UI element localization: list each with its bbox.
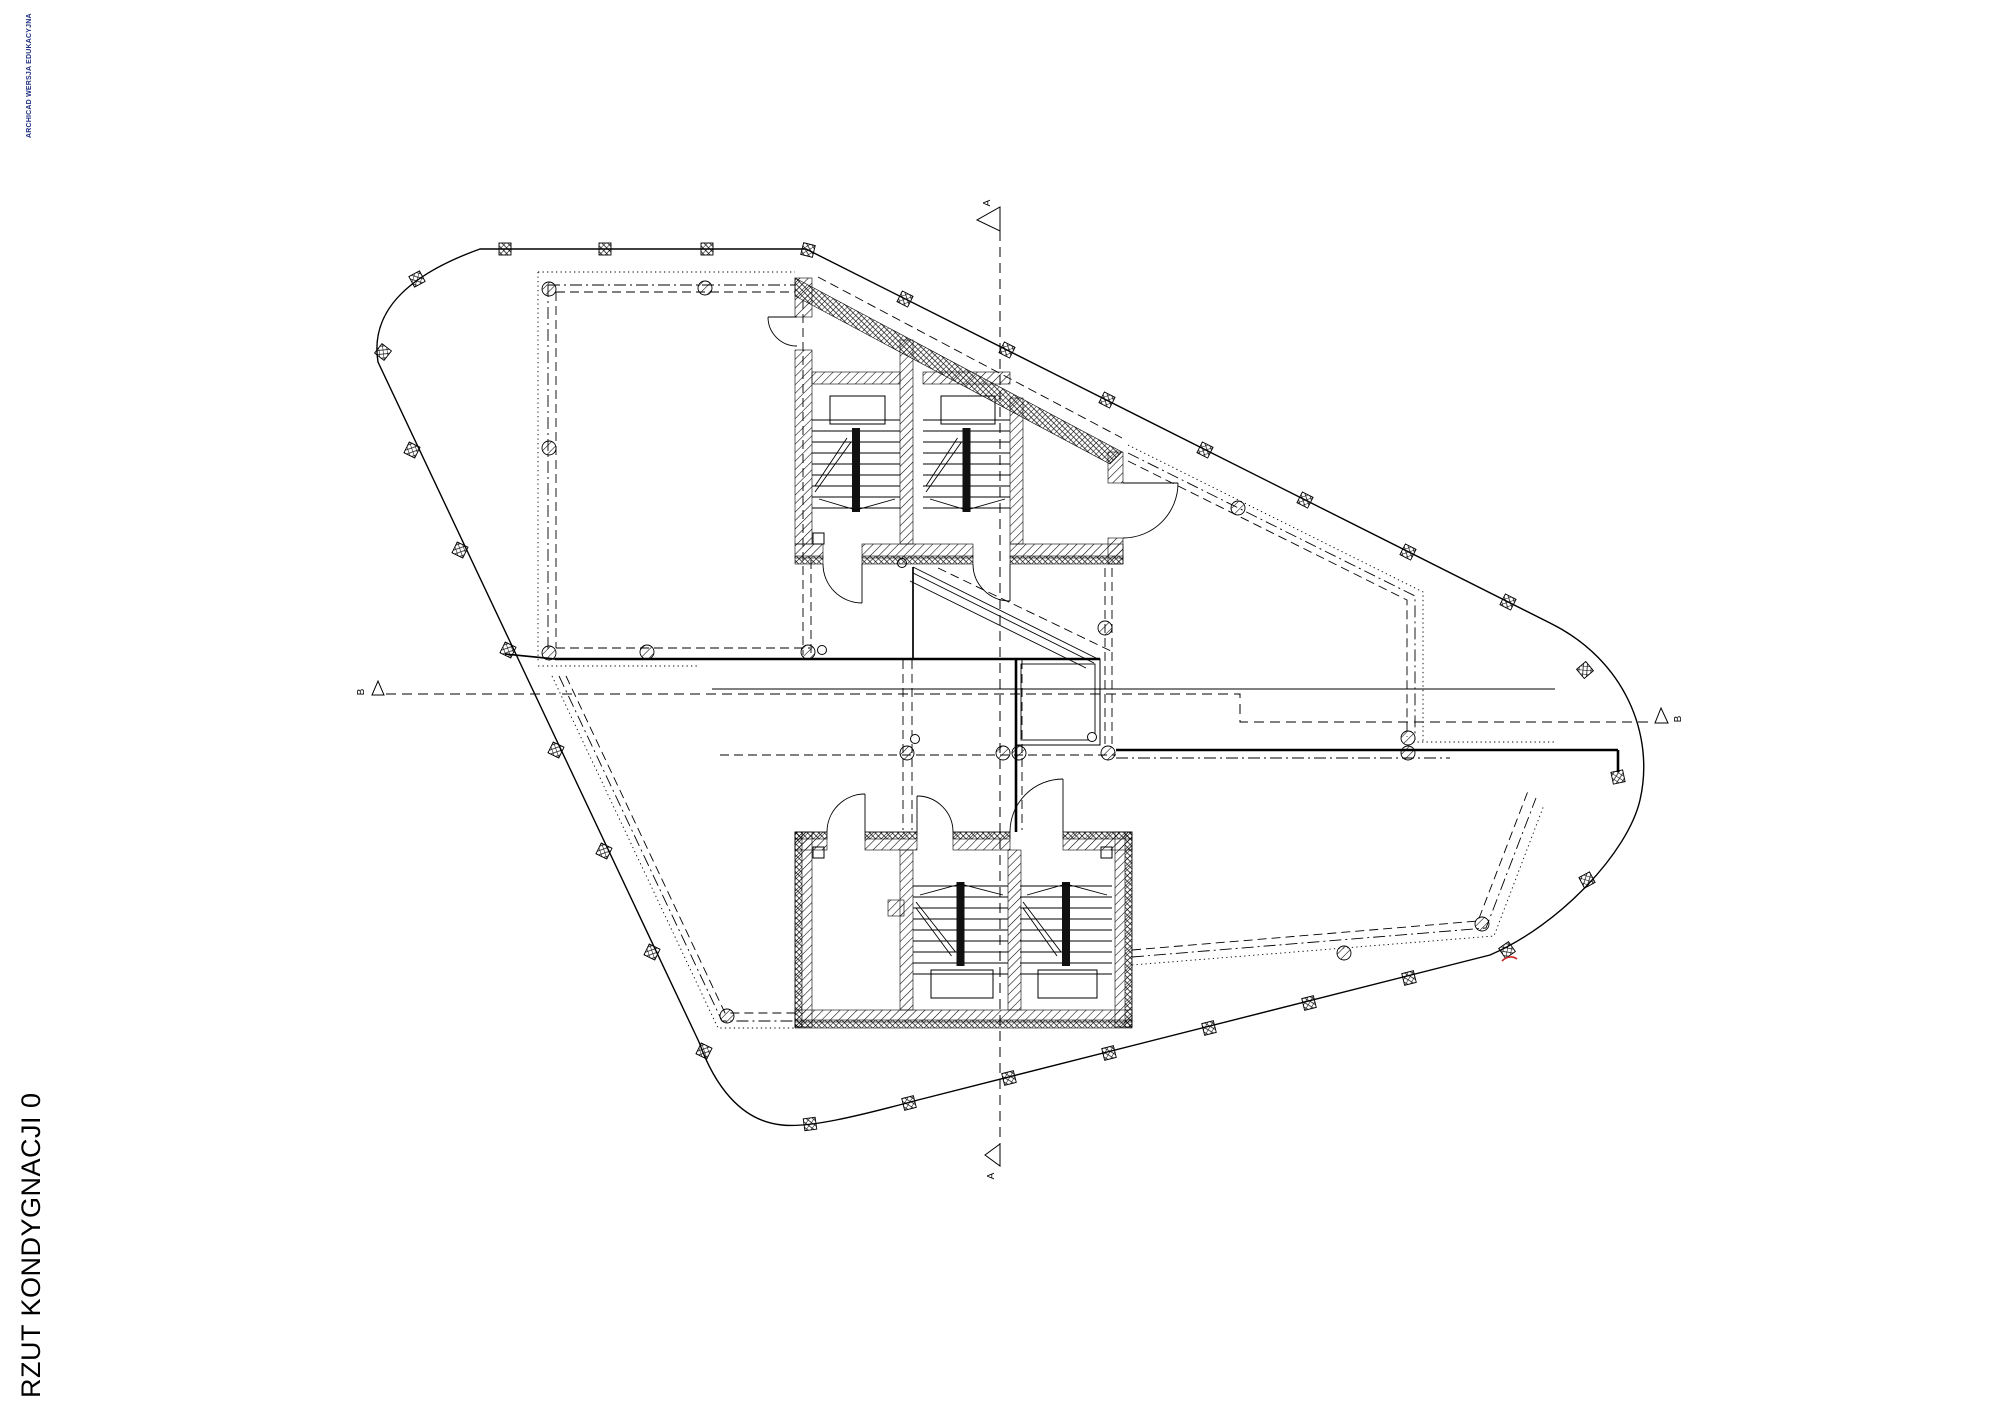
perimeter-column	[599, 243, 611, 255]
stair-arrow	[926, 442, 962, 492]
perimeter-column	[1579, 872, 1595, 888]
perimeter-column	[696, 1043, 712, 1059]
perimeter-column	[644, 944, 660, 960]
section-line-b: B B	[356, 681, 1684, 723]
wall-segment	[1125, 832, 1132, 1027]
perimeter-column	[1302, 996, 1317, 1011]
stair-arrow	[815, 442, 851, 492]
stair-core-lower	[795, 779, 1132, 1028]
ramp-line	[913, 567, 1098, 659]
inner-building-outlines	[538, 272, 1544, 1028]
door-swing	[917, 796, 953, 832]
plan-polyline	[552, 676, 795, 1028]
wall-segment	[862, 556, 973, 564]
stair-rail	[852, 428, 860, 512]
ramp-line	[913, 573, 1094, 663]
wall-segment	[795, 832, 827, 839]
wall-segment	[1008, 850, 1021, 1010]
round-column	[1337, 946, 1351, 960]
lobby-outline	[1016, 659, 1100, 745]
round-column	[996, 746, 1010, 760]
stair-arrow	[1023, 902, 1061, 952]
ramp-line-dashed	[938, 568, 1113, 652]
door-hinge-post	[1088, 733, 1097, 742]
wall-fixture	[888, 900, 904, 916]
perimeter-column	[1202, 1021, 1217, 1036]
perimeter-column	[1577, 662, 1594, 679]
perimeter-column	[701, 243, 713, 255]
section-b-right-triangle-icon	[1655, 708, 1668, 723]
plan-polyline	[559, 676, 795, 1021]
round-column	[1401, 731, 1415, 745]
stair-core-upper	[768, 278, 1178, 603]
section-b-line	[386, 694, 1653, 722]
perimeter-column	[801, 243, 816, 258]
round-column	[1231, 501, 1245, 515]
wall-segment	[795, 350, 812, 544]
round-column	[1475, 917, 1489, 931]
perimeter-column	[803, 1117, 817, 1131]
mid-link-zone	[505, 559, 1618, 833]
section-a-top-label: A	[982, 199, 993, 206]
section-a-bottom-label: A	[986, 1172, 997, 1179]
door-swing	[973, 564, 1010, 601]
plan-polyline	[1128, 445, 1423, 741]
perimeter-column	[548, 742, 564, 758]
perimeter-column	[452, 542, 468, 558]
wall-segment	[923, 372, 1010, 384]
door-swing	[1010, 779, 1063, 832]
round-column	[1101, 746, 1115, 760]
perimeter-column	[1400, 544, 1416, 560]
section-b-left-triangle-icon	[372, 681, 384, 695]
wall-segment	[813, 533, 824, 544]
ramp-line	[910, 581, 1086, 668]
perimeter-column	[1500, 594, 1516, 610]
perimeter-column	[596, 843, 612, 859]
plan-line	[818, 277, 1122, 438]
perimeter-column	[499, 243, 511, 255]
drawing-title: RZUT KONDYGNACJI 0	[16, 1092, 46, 1398]
floor-plan-canvas: A A B B ARCHICAD WERSJA EDUKACYJNA RZUT …	[0, 0, 2000, 1415]
stair-arrow	[815, 438, 847, 486]
stair-rail	[957, 882, 965, 966]
plan-polyline	[1132, 805, 1544, 965]
stair-arrow	[916, 902, 956, 952]
stair-rail	[1062, 882, 1070, 966]
door-swing	[823, 564, 862, 603]
perimeter-column	[1102, 1046, 1117, 1061]
stair-rail	[963, 428, 971, 512]
wall-segment	[900, 850, 913, 1010]
plan-polyline	[1128, 461, 1407, 737]
perimeter-column	[897, 291, 913, 307]
round-column	[698, 281, 712, 295]
archicad-educational-watermark: ARCHICAD WERSJA EDUKACYJNA	[26, 13, 33, 138]
drawing-sheet: A A B B ARCHICAD WERSJA EDUKACYJNA RZUT …	[0, 0, 2000, 1415]
perimeter-column	[1197, 442, 1213, 458]
perimeter-column	[999, 342, 1015, 358]
door-swing	[1123, 483, 1178, 538]
wall-segment	[795, 832, 802, 1027]
section-b-left-label: B	[356, 688, 367, 695]
perimeter-column	[1297, 492, 1313, 508]
lobby-inner-line	[1021, 664, 1095, 740]
round-column	[801, 645, 815, 659]
round-column	[1012, 746, 1026, 760]
door-hinge-post	[911, 735, 920, 744]
door-swing	[768, 317, 797, 346]
perimeter-column	[1002, 1071, 1017, 1086]
round-column	[720, 1009, 734, 1023]
wall-segment	[900, 340, 913, 544]
core-diagonal-wall	[795, 278, 1122, 464]
wall-segment	[795, 556, 823, 564]
plan-polyline	[1128, 453, 1415, 740]
wall-segment	[953, 832, 1010, 839]
door-swing	[827, 794, 865, 832]
round-column	[542, 282, 556, 296]
round-column	[640, 645, 654, 659]
revision-mark	[1502, 957, 1517, 961]
section-b-right-label: B	[1673, 715, 1684, 722]
stair-arrow	[1023, 908, 1057, 956]
wall-segment	[812, 372, 900, 384]
round-column	[542, 441, 556, 455]
perimeter-column	[902, 1096, 917, 1111]
plan-polyline	[1132, 791, 1528, 950]
perimeter-column	[1611, 770, 1625, 784]
wall-segment	[1010, 398, 1023, 544]
section-a-top-triangle-icon	[977, 207, 1000, 231]
wall-segment	[1108, 452, 1123, 483]
stair-arrow	[916, 908, 952, 956]
wall-segment	[1063, 832, 1132, 839]
wall-segment	[1010, 556, 1123, 564]
wall-segment	[795, 1020, 1132, 1028]
perimeter-column	[1402, 971, 1417, 986]
door-hinge-post	[818, 646, 827, 655]
stair-arrow	[926, 438, 958, 486]
section-a-bottom-triangle-icon	[985, 1144, 1000, 1166]
perimeter-column	[1099, 392, 1115, 408]
wall-segment	[865, 832, 917, 839]
